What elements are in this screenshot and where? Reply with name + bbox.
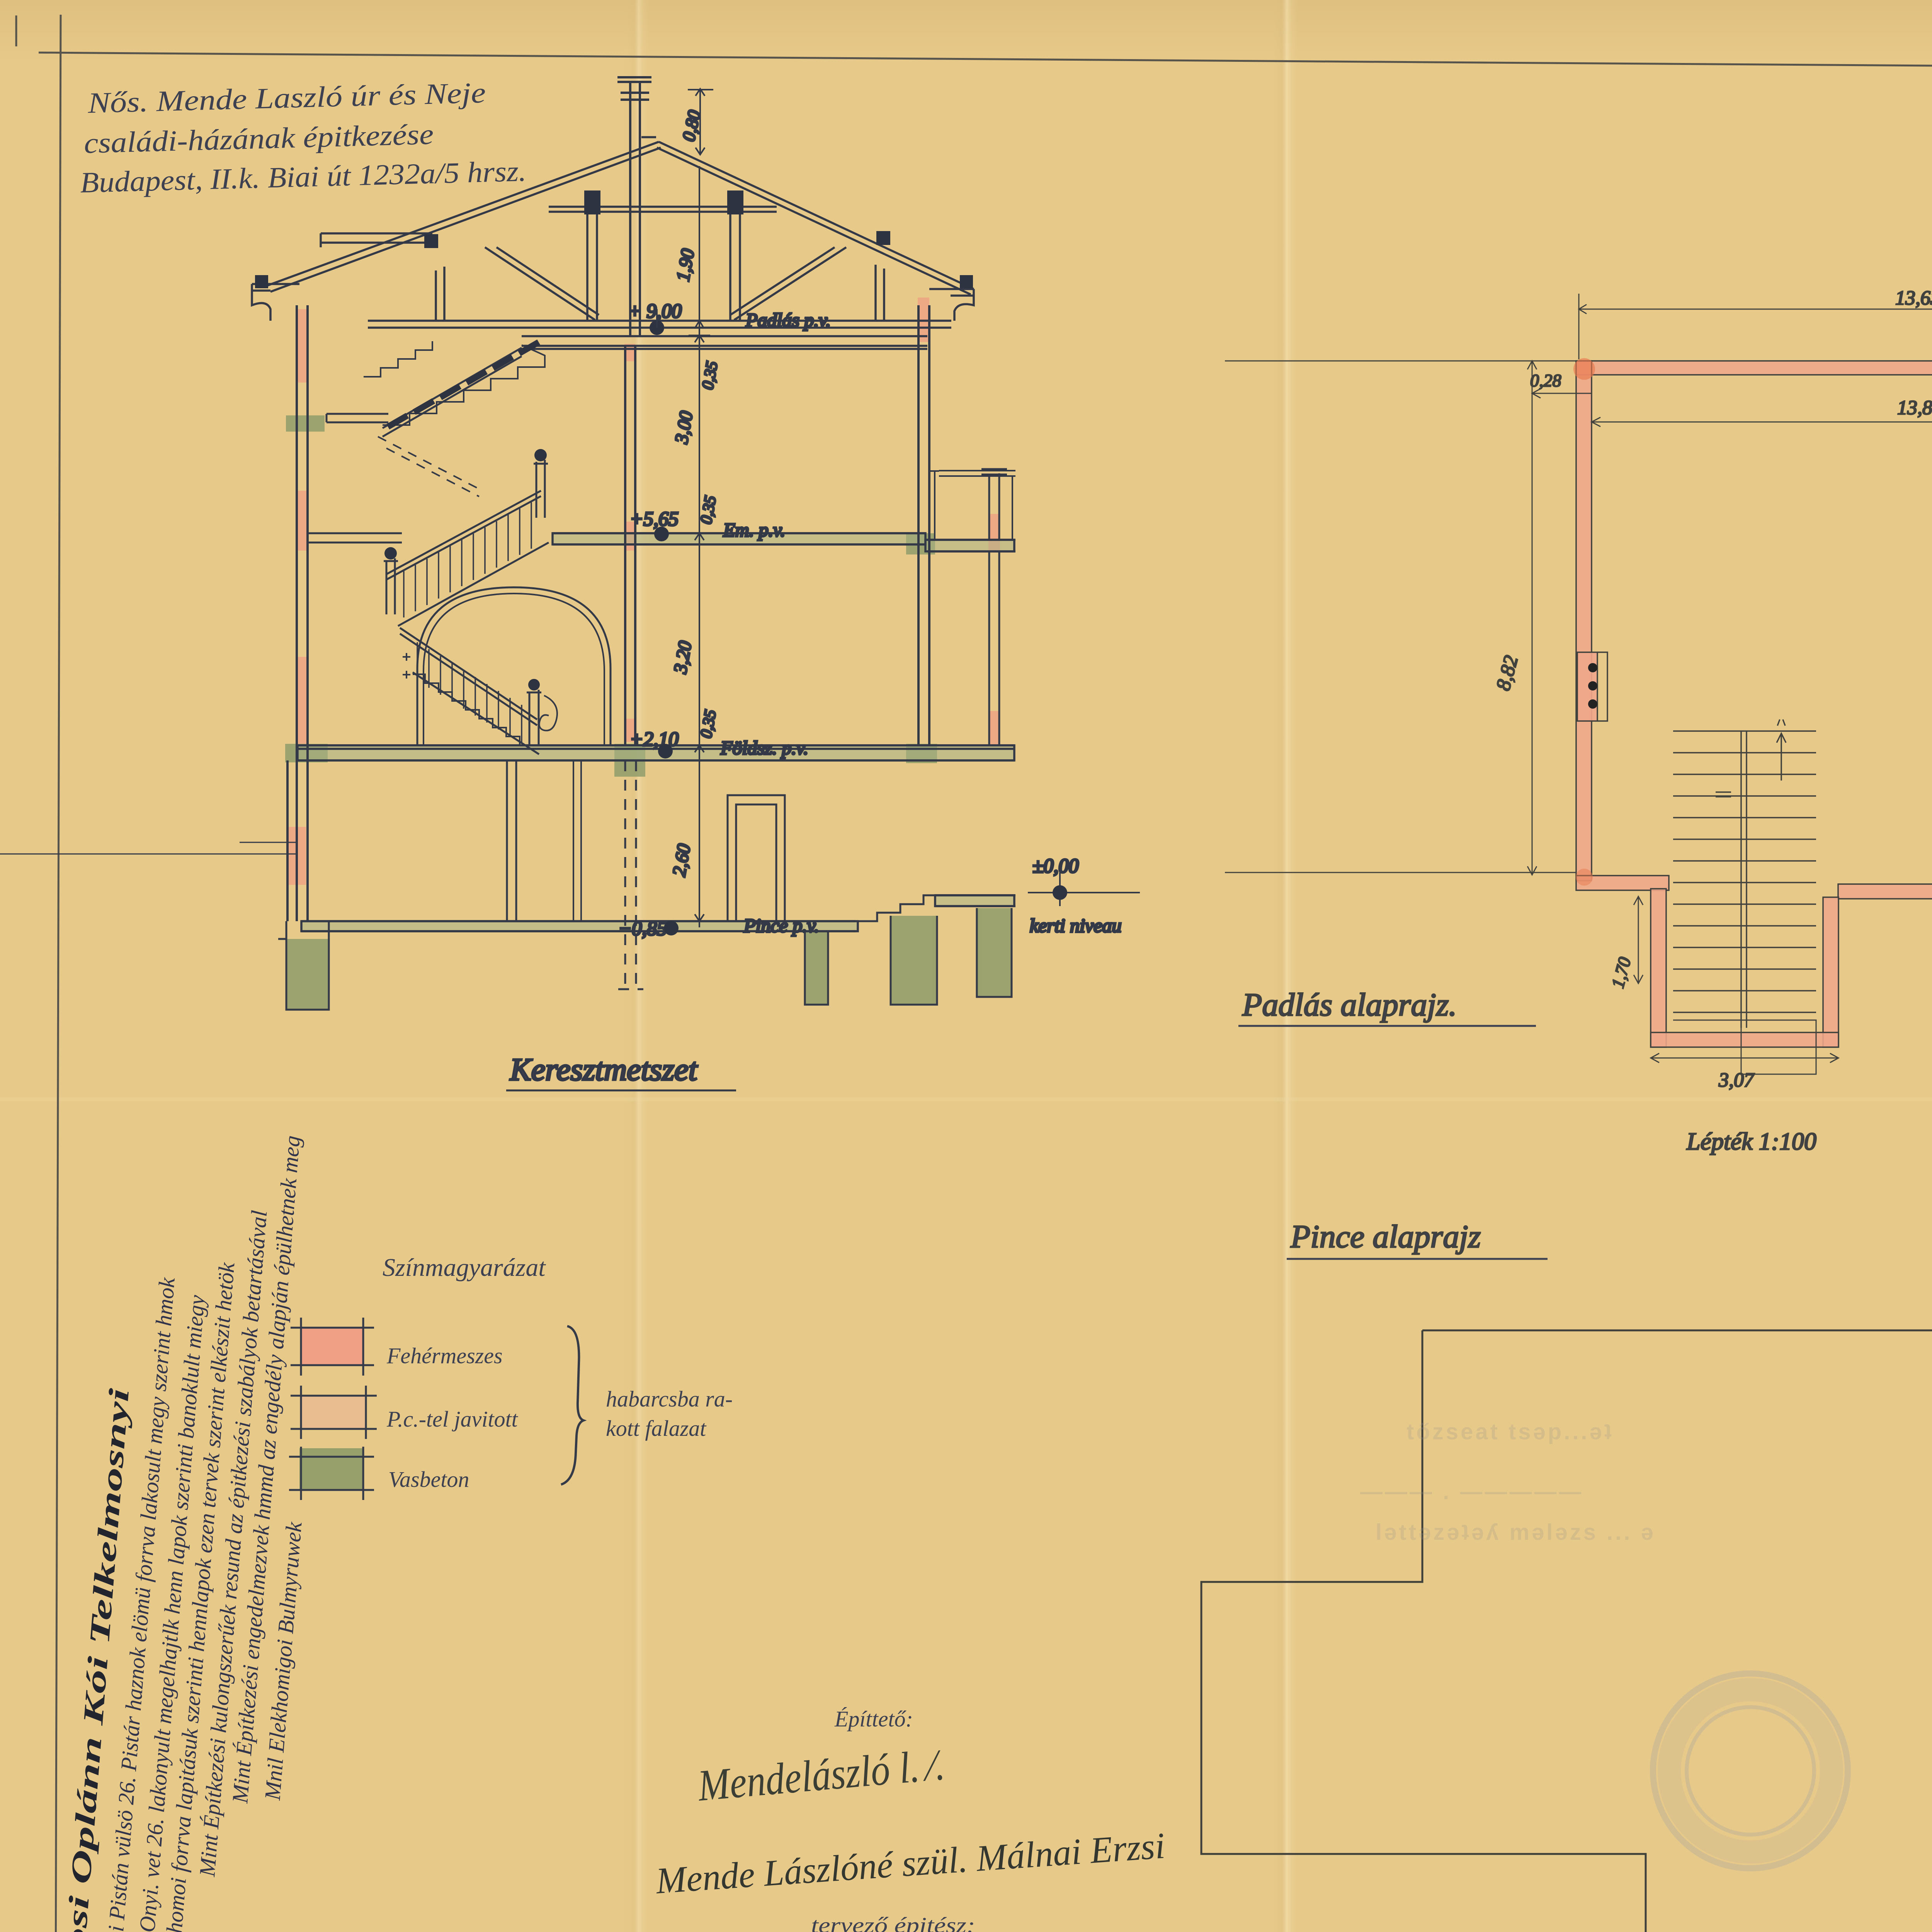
svg-text:Keresztmetszet: Keresztmetszet — [510, 1052, 698, 1087]
svg-text:3,07: 3,07 — [1718, 1069, 1755, 1091]
svg-text:Építtető:: Építtető: — [834, 1706, 913, 1731]
svg-text:13,63: 13,63 — [1895, 287, 1932, 309]
svg-text:habarcsba ra-: habarcsba ra- — [606, 1386, 733, 1412]
svg-text:Vasbeton: Vasbeton — [388, 1467, 469, 1492]
svg-text:Pince alaprajz: Pince alaprajz — [1290, 1219, 1481, 1255]
svg-text:Pince p.v.: Pince p.v. — [743, 915, 819, 936]
svg-text:+5,65: +5,65 — [630, 508, 679, 530]
svg-text:Padlás alaprajz.: Padlás alaprajz. — [1242, 987, 1457, 1023]
svg-text:Fehérmeszes: Fehérmeszes — [386, 1343, 503, 1368]
svg-text:−0,85: −0,85 — [618, 918, 667, 940]
svg-text:P.c.-tel javitott: P.c.-tel javitott — [386, 1406, 519, 1432]
svg-text:Földsz. p.v.: Földsz. p.v. — [720, 737, 808, 759]
svg-text:kerti niveau: kerti niveau — [1030, 915, 1121, 936]
svg-text:Lépték 1:100: Lépték 1:100 — [1686, 1128, 1816, 1155]
svg-text:——— . —————: ——— . ————— — [1360, 1479, 1583, 1504]
svg-text:13,86: 13,86 — [1897, 397, 1932, 419]
svg-text:kott falazat: kott falazat — [606, 1416, 707, 1441]
svg-text:Em. p.v.: Em. p.v. — [723, 519, 785, 541]
svg-text:tőzseat tsəp...əʇ: tőzseat tsəp...əʇ — [1406, 1419, 1614, 1444]
svg-text:0,28: 0,28 — [1530, 371, 1561, 390]
svg-text:tervező épitész:: tervező épitész: — [811, 1913, 975, 1932]
svg-text:+ 9,00: + 9,00 — [628, 300, 682, 322]
svg-text:Padlás p.v.: Padlás p.v. — [745, 309, 831, 331]
svg-text:Színmagyarázat: Színmagyarázat — [383, 1253, 546, 1282]
svg-text:lǝttǝzǝʇǝʎ mǝlǝzs ... ə: lǝttǝzǝʇǝʎ mǝlǝzs ... ə — [1376, 1520, 1656, 1545]
svg-text:±0,00: ±0,00 — [1032, 855, 1079, 877]
